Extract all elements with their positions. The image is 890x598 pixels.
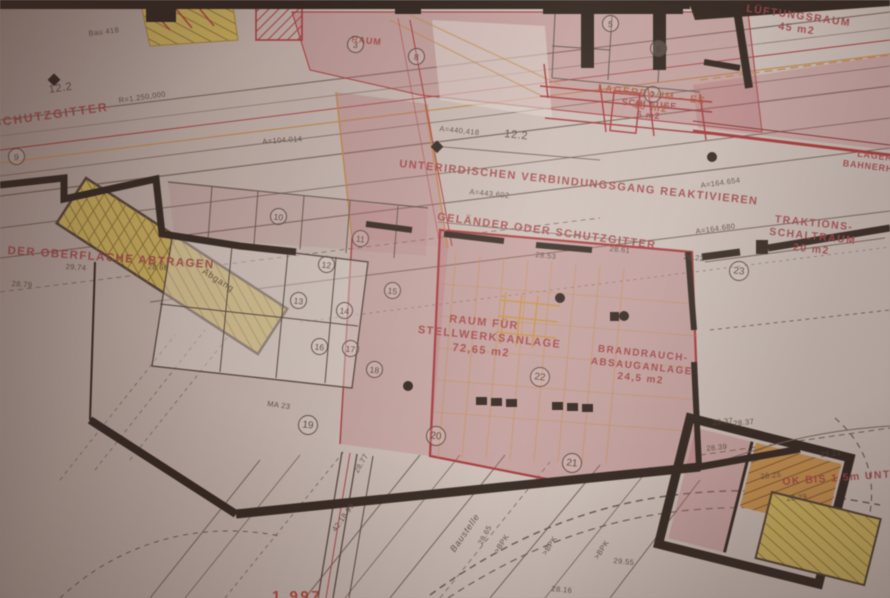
plan-drawing: SCHUTZGITTER UNTERIRDISCHEN VERBINDUNGSG… — [0, 0, 890, 598]
plan-linework — [0, 0, 890, 598]
blueprint-photo: SCHUTZGITTER UNTERIRDISCHEN VERBINDUNGSG… — [0, 0, 890, 598]
dim-12-2-mid: 12.2 — [504, 128, 529, 142]
spot-level: 28.66 — [147, 262, 168, 272]
stamp-date-fragment: 1.997 — [272, 588, 322, 598]
spot-level: 29.74 — [65, 262, 86, 272]
spot-level: 28.79 — [11, 279, 32, 289]
